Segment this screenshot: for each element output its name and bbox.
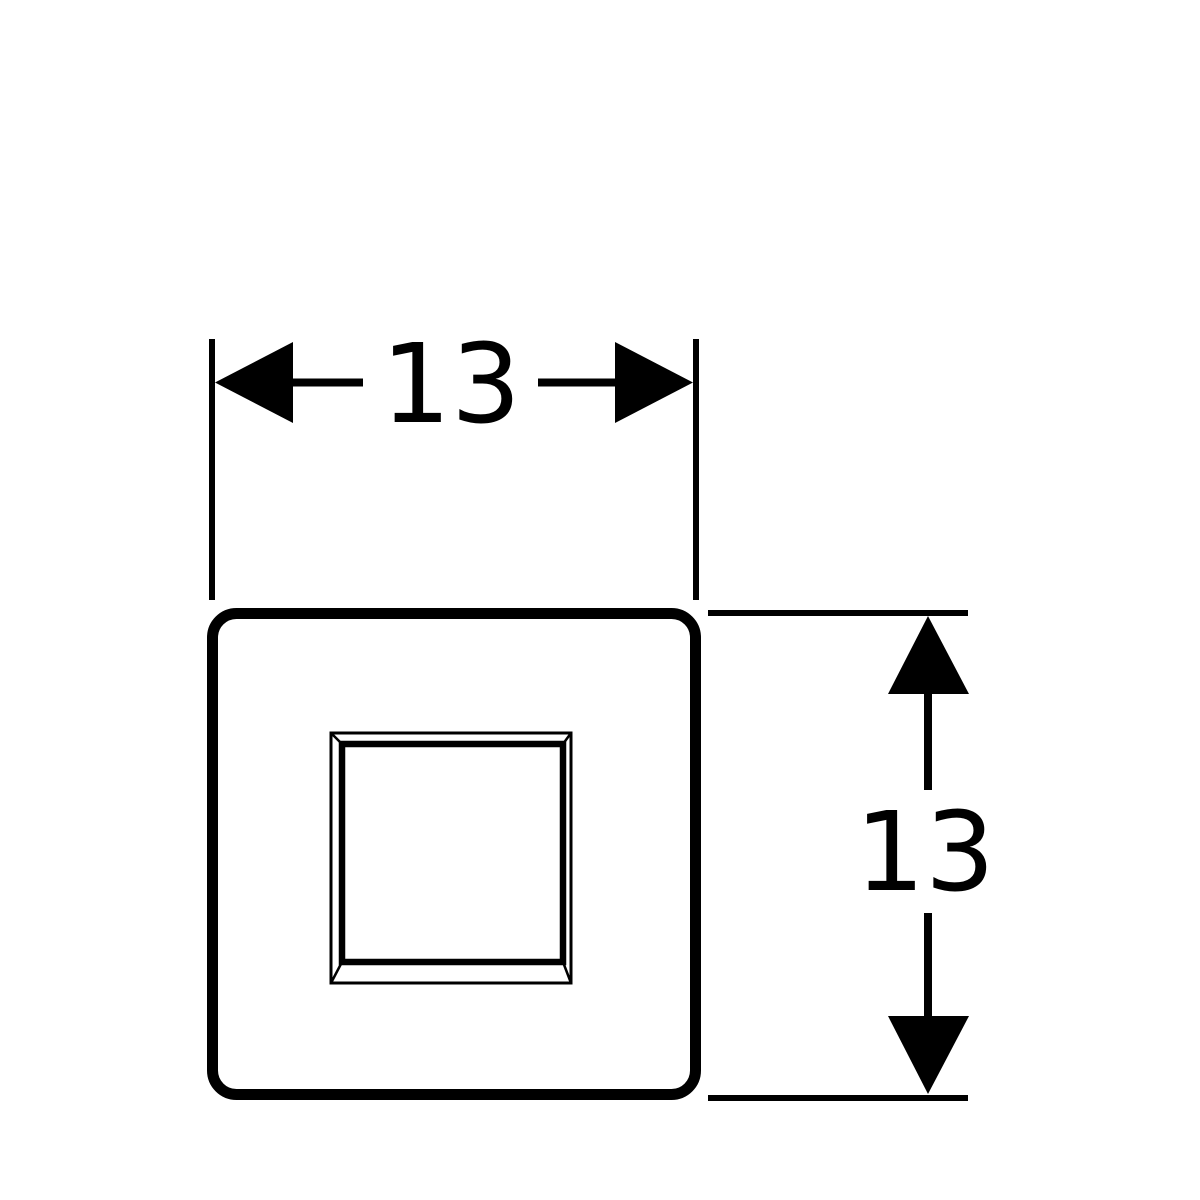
width-dimension-value: 13: [381, 320, 521, 448]
drawing-background: [0, 0, 1200, 1200]
drawing-canvas: 13 13: [0, 0, 1200, 1200]
dimension-drawing: 13 13: [0, 0, 1200, 1200]
height-dimension-value: 13: [855, 788, 995, 916]
